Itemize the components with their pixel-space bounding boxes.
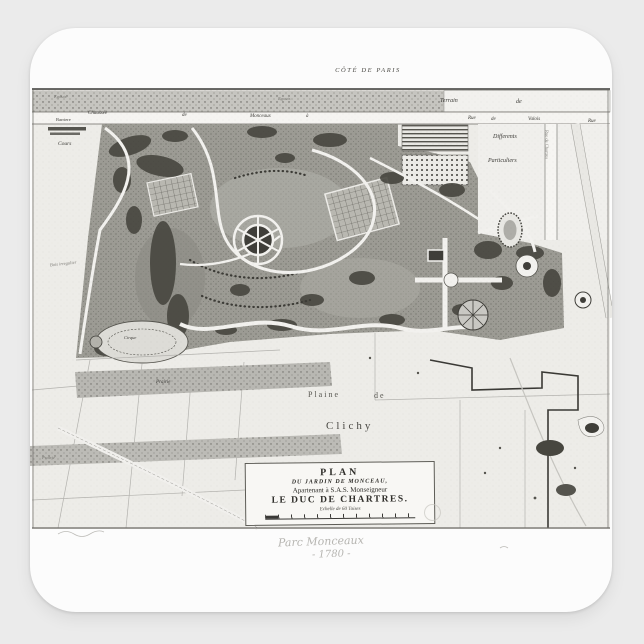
label-rue1: Rue <box>468 116 476 121</box>
handwriting-date: - 1780 - <box>312 549 351 560</box>
label-rue-chartres: Rue de Chartres <box>544 130 549 159</box>
label-differents: Differents <box>493 134 517 140</box>
label-particuliers: Particuliers <box>488 158 517 164</box>
label-barriere: Barriere <box>56 118 71 123</box>
label-cours: Cours <box>58 142 71 148</box>
cartouche-line4: LE DUC DE CHARTRES. <box>246 494 434 506</box>
label-chaussee: Chaussée <box>88 111 107 116</box>
label-rue-de: de <box>491 117 496 122</box>
blind-stamp <box>424 504 441 521</box>
label-cirque: Cirque <box>124 336 136 341</box>
label-prairie-upper: Prairie <box>156 380 170 385</box>
label-egouts-center: Egouts <box>278 97 291 102</box>
label-egouts-left: Egouts <box>54 95 67 100</box>
label-terrain: Terrain <box>440 98 458 104</box>
cartouche-title: PLAN <box>246 466 434 479</box>
label-cote-de-paris: Côté de Paris <box>313 68 423 75</box>
square-sticker: Côté de Paris Egouts Egouts Chaussée de … <box>30 28 612 612</box>
scale-bar <box>265 513 415 520</box>
label-plaine: Plaine <box>308 391 340 399</box>
label-de-road: de <box>182 113 187 118</box>
antique-map-print: Côté de Paris Egouts Egouts Chaussée de … <box>30 28 612 612</box>
label-terrain-de: de <box>516 99 522 105</box>
title-cartouche: PLAN DU JARDIN DE MONCEAU, Apartenant à … <box>245 461 436 526</box>
cartouche-scale-label: Echelle de 60 Toises <box>246 506 434 513</box>
label-valois: Valois <box>528 117 540 122</box>
handwriting-title: Parc Monceaux <box>278 535 364 549</box>
label-monceaux: Monceaux <box>250 114 271 119</box>
label-clichy: Clichy <box>326 421 373 432</box>
label-a-road: à <box>306 114 309 119</box>
label-plaine-de: de <box>374 392 386 400</box>
label-prairie-lower: Prairie <box>42 456 55 461</box>
label-rue2: Rue <box>588 119 596 124</box>
